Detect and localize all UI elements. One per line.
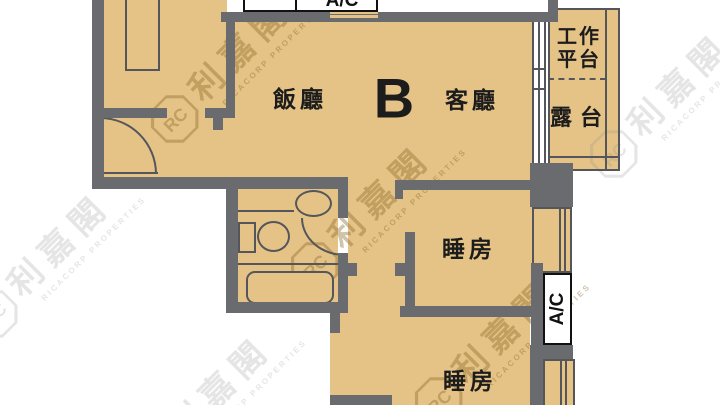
- entrance-door-leaf: [100, 172, 158, 174]
- utility-platform-label: 工作 平台: [557, 26, 601, 72]
- balcony-inner-wall-line: [605, 8, 607, 171]
- wall-bathroom-right-bottom: [338, 253, 348, 313]
- bedroom2-door-gap: [330, 333, 340, 395]
- wall-bathroom-left: [226, 189, 238, 302]
- floor-plan: RC 利嘉閣 RICACORP PROPERTIES RC 利嘉閣 RICACO…: [0, 0, 720, 405]
- wall-bathroom-right-top: [338, 189, 348, 218]
- wall-bathroom-bottom: [226, 302, 348, 313]
- watermark-company: RICACORP PROPERTIES: [40, 195, 148, 303]
- wall-bottom-left: [92, 177, 348, 189]
- bathtub-icon: [246, 271, 334, 304]
- balcony-label: 露台: [550, 100, 610, 132]
- wall-bedroom2-bottom-left: [330, 395, 392, 405]
- wall-bedroom1-bottom: [400, 306, 532, 317]
- wall-bedroom1-left: [405, 232, 415, 315]
- wall-top-stub: [548, 0, 558, 12]
- balcony-window-line: [544, 19, 546, 165]
- wall-bedroom2-right: [530, 359, 543, 405]
- bathroom-shelf-line: [238, 263, 338, 265]
- bay-window2-glazing: [565, 359, 567, 405]
- wall-kitchen-stub: [213, 108, 223, 130]
- living-room-label: 客廳: [445, 81, 499, 115]
- dining-room-label: 飯廳: [273, 80, 327, 114]
- bedroom1-label: 睡房: [442, 230, 496, 264]
- window-tick: [532, 68, 546, 70]
- bedroom2-label: 睡房: [443, 362, 497, 396]
- toilet-tank-icon: [238, 222, 256, 253]
- watermark-brand: 利嘉閣: [155, 302, 301, 405]
- door-jamb: [395, 263, 405, 276]
- wall-top: [221, 12, 558, 22]
- watermark-company: RICACORP PROPERTIES: [660, 35, 720, 143]
- wall-left-outer: [92, 0, 104, 189]
- utility-platform-line1: 工作: [557, 26, 601, 49]
- utility-balcony-divider: [548, 78, 606, 80]
- ac-box-divider: [295, 0, 297, 10]
- ac-platform-top: A/C: [243, 0, 378, 12]
- balcony-window-line: [532, 19, 534, 165]
- bay-window2-glazing: [560, 359, 562, 405]
- wall-bedroom1-top: [395, 180, 532, 190]
- kitchen-counter: [125, 0, 160, 71]
- ac-label-top: A/C: [307, 0, 377, 12]
- wall-corner-block-top: [530, 163, 573, 207]
- wall-corner-block-bottom: [530, 345, 573, 359]
- bay-window1-glazing: [564, 207, 566, 273]
- wall-kitchen-bottom-a: [104, 108, 167, 118]
- toilet-bowl-icon: [257, 221, 290, 252]
- balcony-sill-line: [548, 156, 620, 158]
- corridor-floor: [348, 180, 405, 320]
- wall-bedroom1-top-stub: [395, 180, 403, 199]
- svg-text:RC: RC: [0, 298, 11, 330]
- bedroom2-floor: [340, 313, 530, 405]
- balcony-window-line: [538, 19, 540, 165]
- bathroom-counter-line: [238, 210, 294, 212]
- sink-icon: [295, 190, 332, 217]
- ac-grille-stripe: [330, 15, 378, 18]
- ac-platform-right: A/C: [543, 273, 572, 345]
- watermark-company: RICACORP PROPERTIES: [201, 338, 309, 405]
- ac-label-right: A/C: [547, 293, 569, 326]
- unit-label: B: [374, 66, 414, 131]
- window-tick: [532, 88, 546, 90]
- utility-platform-line2: 平台: [557, 49, 601, 72]
- bay-window1-glazing: [559, 207, 561, 273]
- ricacorp-logo-icon: RC: [0, 281, 26, 346]
- wall-bedroom2-left-stub: [330, 313, 340, 333]
- bay-window2-outline: [543, 359, 575, 405]
- watermark: RC 利嘉閣 RICACORP PROPERTIES: [117, 302, 308, 405]
- door-jamb: [348, 263, 357, 276]
- watermark-brand: 利嘉閣: [614, 0, 720, 145]
- wall-kitchen-right: [226, 12, 235, 118]
